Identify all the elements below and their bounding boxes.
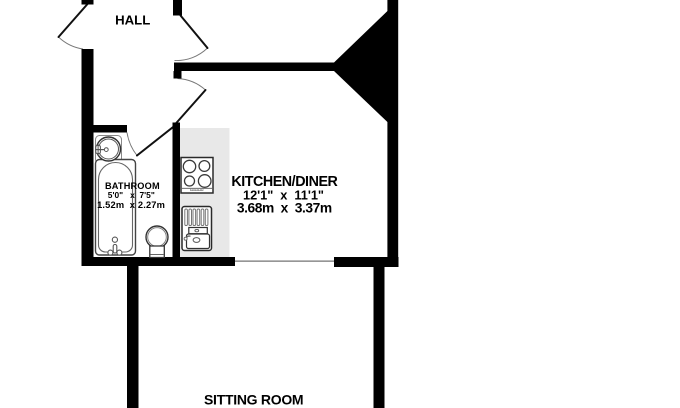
svg-text:HALL: HALL	[115, 13, 150, 28]
svg-text:5'0" x 7'5": 5'0" x 7'5"	[108, 190, 155, 200]
svg-text:SITTING ROOM: SITTING ROOM	[204, 392, 304, 408]
svg-text:1.52m x 2.27m: 1.52m x 2.27m	[97, 200, 165, 210]
svg-text:3.68m x 3.37m: 3.68m x 3.37m	[237, 201, 332, 216]
